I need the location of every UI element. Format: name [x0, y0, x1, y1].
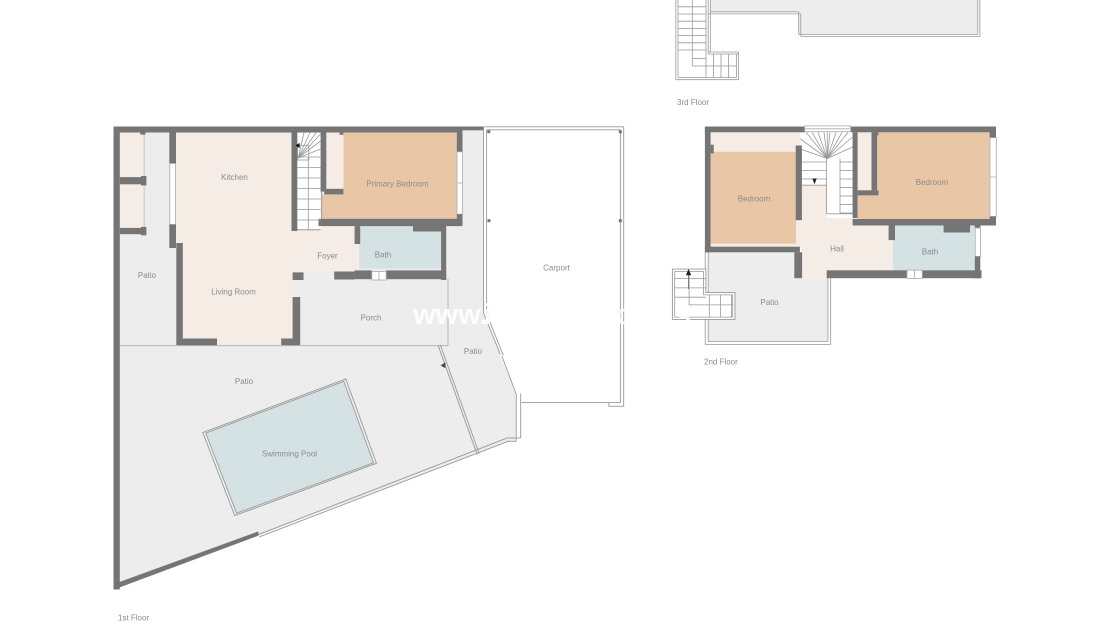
- svg-text:Patio: Patio: [760, 298, 779, 307]
- svg-text:Porch: Porch: [361, 314, 382, 323]
- svg-text:Primary Bedroom: Primary Bedroom: [366, 180, 429, 189]
- svg-text:3rd Floor: 3rd Floor: [677, 98, 709, 107]
- svg-text:Bedroom: Bedroom: [738, 195, 771, 204]
- svg-text:indomio.es: indomio.es: [484, 299, 697, 331]
- svg-text:Foyer: Foyer: [317, 252, 338, 261]
- svg-text:Patio: Patio: [138, 271, 157, 280]
- svg-text:Carport: Carport: [543, 264, 570, 273]
- svg-text:Bath: Bath: [922, 248, 938, 257]
- svg-text:Patio: Patio: [464, 347, 483, 356]
- svg-text:Swimming Pool: Swimming Pool: [262, 450, 317, 459]
- svg-text:Hall: Hall: [830, 245, 844, 254]
- svg-text:Kitchen: Kitchen: [221, 173, 248, 182]
- svg-text:Living Room: Living Room: [211, 288, 256, 297]
- svg-text:2nd Floor: 2nd Floor: [704, 358, 738, 367]
- svg-text:www.: www.: [412, 299, 488, 331]
- svg-text:Bath: Bath: [375, 251, 391, 260]
- svg-text:Patio: Patio: [235, 377, 254, 386]
- svg-text:1st Floor: 1st Floor: [118, 614, 149, 623]
- svg-text:Bedroom: Bedroom: [916, 178, 949, 187]
